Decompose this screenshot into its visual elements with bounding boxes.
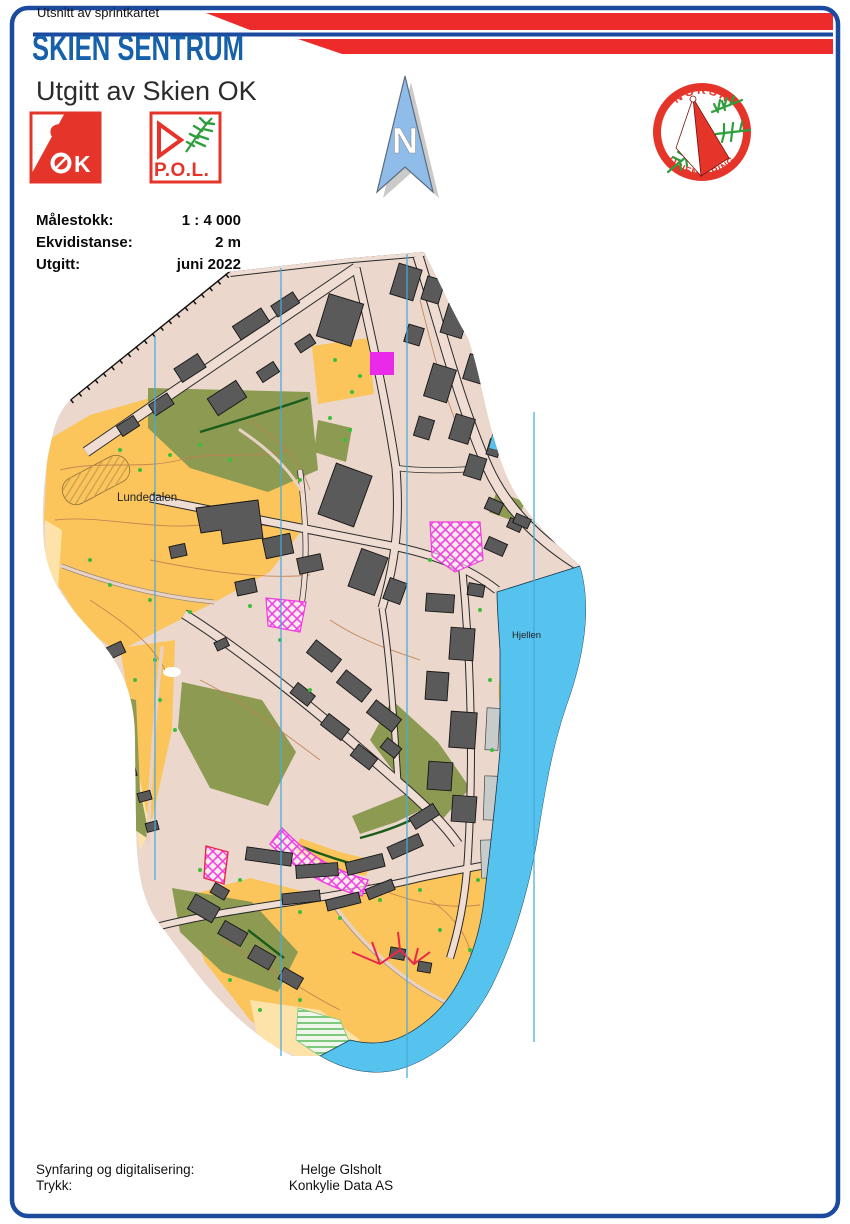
sok-club-logo: S K [31, 113, 100, 182]
map-info-block: Målestokk: 1 : 4 000 Ekvidistanse: 2 m U… [36, 210, 241, 276]
credits-block: Synfaring og digitalisering: Helge Glsho… [36, 1162, 456, 1194]
sprint-map: Lundedalen Hjellen [0, 240, 590, 1080]
map-bare-rock [163, 667, 181, 677]
contour-interval-value: 2 m [215, 232, 241, 254]
scale-row: Målestokk: 1 : 4 000 [36, 210, 241, 232]
print-credit-label: Trykk: [36, 1178, 251, 1194]
page-graphics: S K P.O.L. N NORSK ORIENTERING [0, 0, 850, 1224]
issued-label: Utgitt: [36, 254, 80, 276]
contour-interval-row: Ekvidistanse: 2 m [36, 232, 241, 254]
page-subtitle: Utgitt av Skien OK [36, 76, 257, 107]
pol-letters: P.O.L. [154, 160, 209, 181]
page-title: SKIEN SENTRUM [32, 28, 244, 69]
page-kicker: Utsnitt av sprintkartet [37, 5, 159, 20]
scale-value: 1 : 4 000 [182, 210, 241, 232]
sok-letter-k: K [74, 151, 91, 177]
norsk-orientering-logo: NORSK ORIENTERING [657, 83, 750, 179]
survey-credit-row: Synfaring og digitalisering: Helge Glsho… [36, 1162, 456, 1178]
issued-row: Utgitt: juni 2022 [36, 254, 241, 276]
north-letter: N [392, 120, 418, 161]
print-credit-value: Konkylie Data AS [251, 1178, 431, 1194]
survey-credit-value: Helge Glsholt [251, 1162, 431, 1178]
map-label-hjellen: Hjellen [512, 630, 541, 641]
north-arrow: N [377, 76, 439, 198]
map-label-lundedalen: Lundedalen [117, 492, 177, 504]
survey-credit-label: Synfaring og digitalisering: [36, 1162, 251, 1178]
print-credit-row: Trykk: Konkylie Data AS [36, 1178, 456, 1194]
issued-value: juni 2022 [177, 254, 241, 276]
contour-interval-label: Ekvidistanse: [36, 232, 133, 254]
scale-label: Målestokk: [36, 210, 114, 232]
pol-club-logo: P.O.L. [151, 113, 220, 182]
